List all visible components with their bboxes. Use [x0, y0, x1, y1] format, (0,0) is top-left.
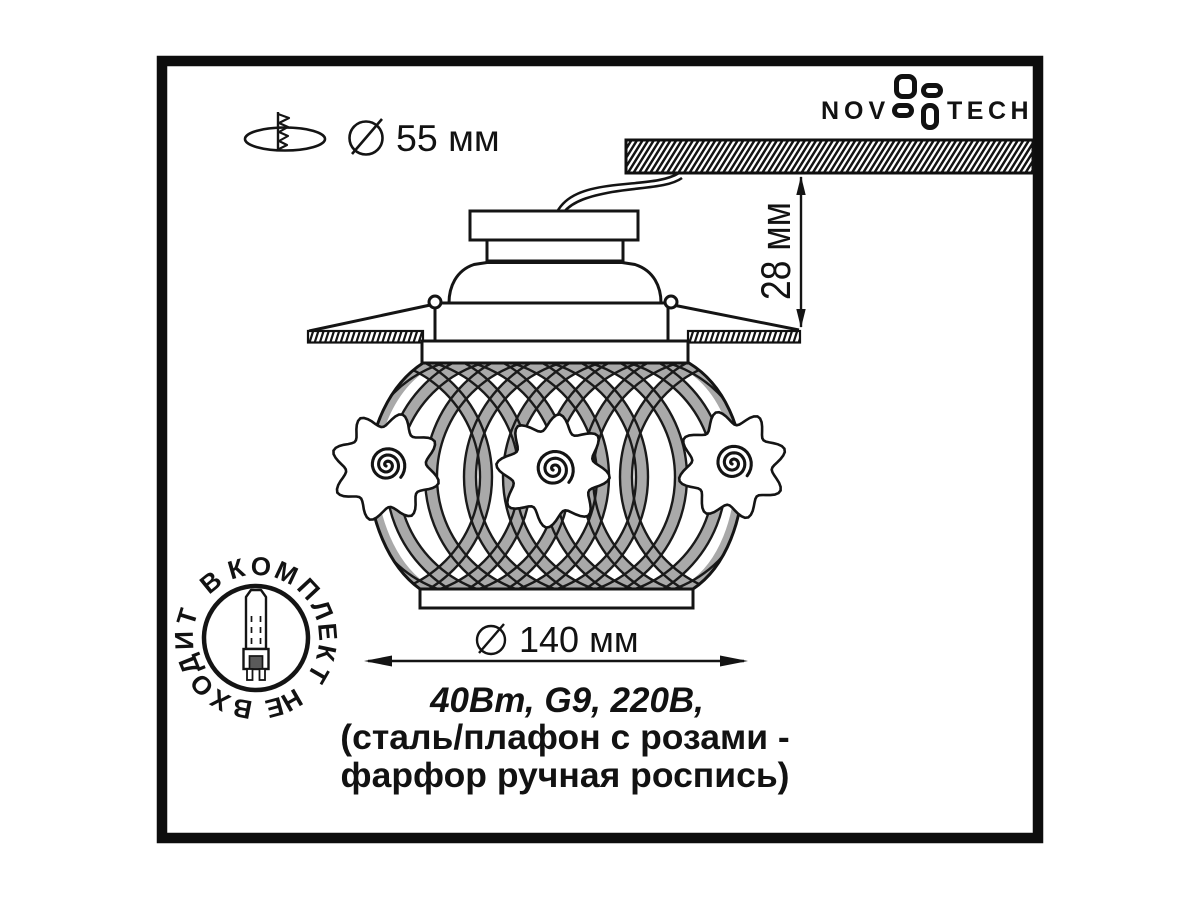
svg-text:(сталь/плафон с розами -: (сталь/плафон с розами -	[340, 717, 789, 757]
svg-text:NOV: NOV	[821, 97, 890, 125]
svg-text:И: И	[169, 631, 200, 651]
svg-text:55 мм: 55 мм	[396, 117, 500, 159]
svg-text:140 мм: 140 мм	[519, 619, 639, 660]
svg-text:Е: Е	[312, 622, 343, 642]
svg-text:О: О	[250, 551, 272, 582]
svg-text:40Вт, G9, 220В,: 40Вт, G9, 220В,	[429, 681, 704, 720]
svg-text:фарфор ручная роспись): фарфор ручная роспись)	[341, 755, 790, 795]
svg-text:TECH: TECH	[947, 97, 1033, 125]
svg-text:28 мм: 28 мм	[752, 202, 799, 300]
